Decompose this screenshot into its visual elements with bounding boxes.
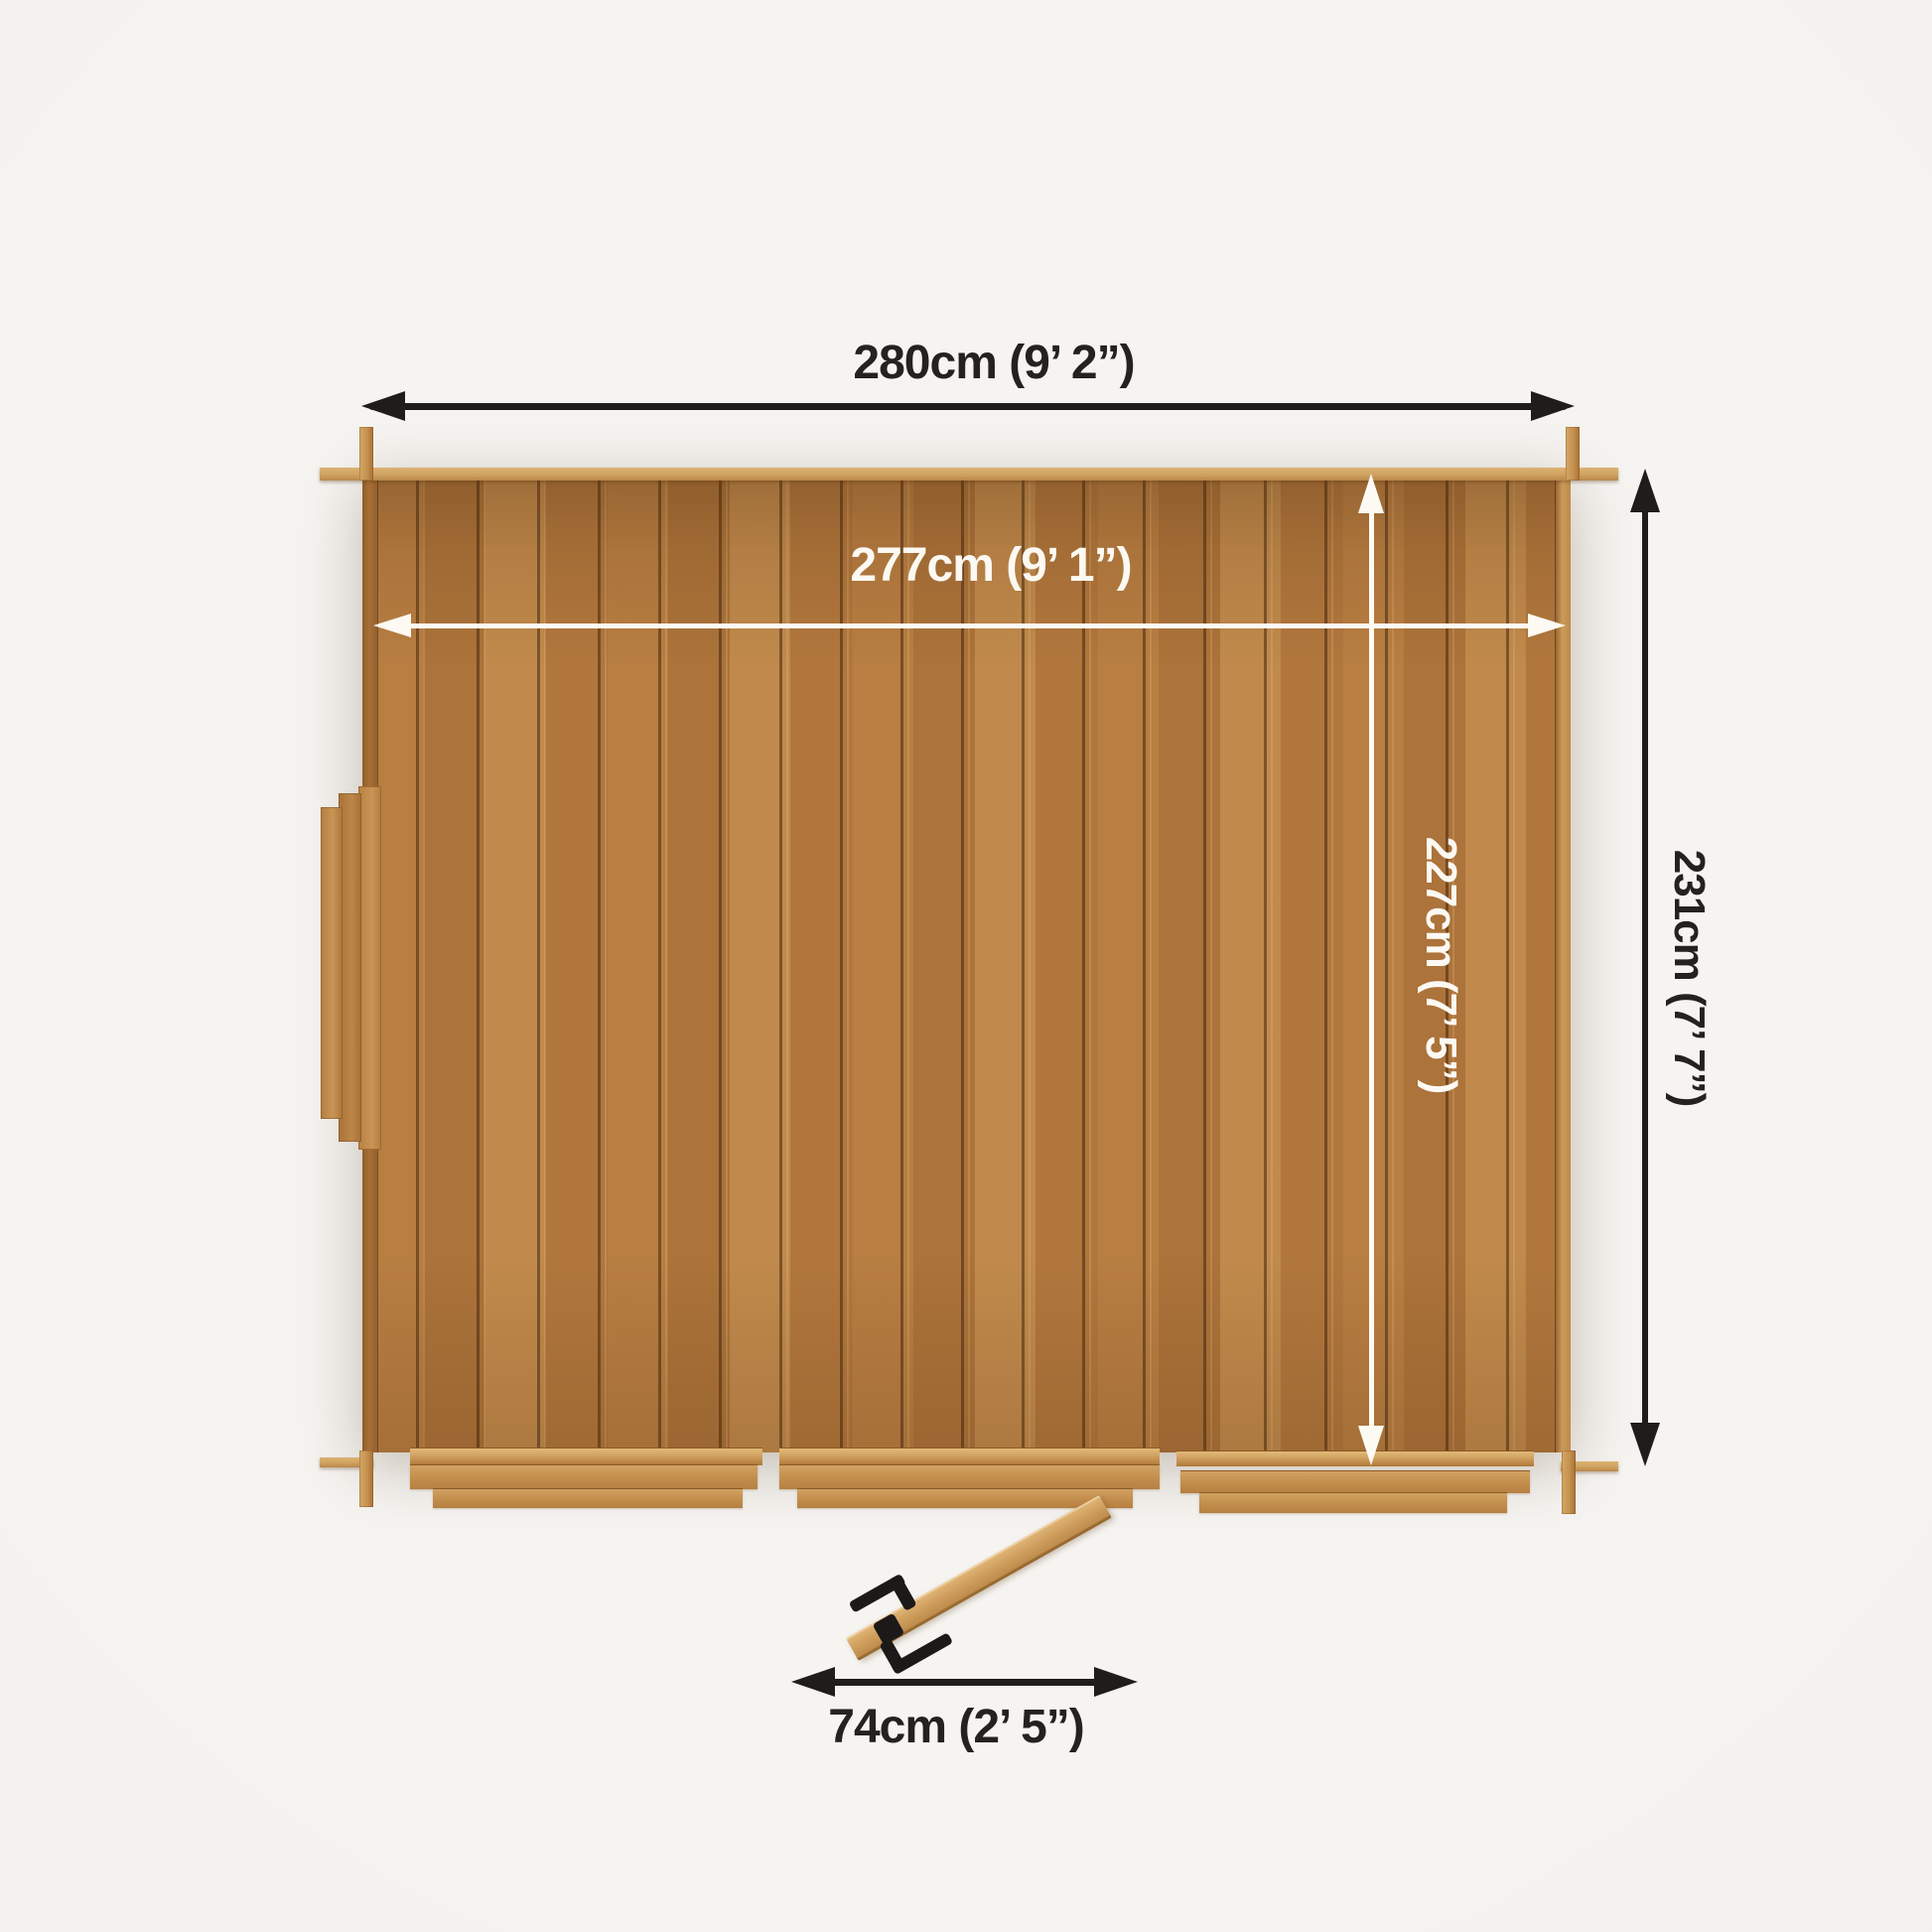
door-handle-outer-stem bbox=[889, 1574, 917, 1611]
outer-width-dimension-line bbox=[369, 403, 1567, 410]
threshold-board-middle bbox=[779, 1448, 1160, 1465]
cabin-body-panel bbox=[362, 471, 1571, 1452]
arrowhead-left-icon bbox=[361, 391, 405, 421]
arrowhead-right-icon bbox=[1531, 391, 1575, 421]
inner-width-label: 277cm (9’ 1”) bbox=[850, 542, 1131, 590]
threshold-board-left bbox=[410, 1448, 762, 1465]
arrowhead-left-icon bbox=[373, 614, 411, 637]
side-window-sill bbox=[358, 786, 381, 1150]
door-panel-open bbox=[846, 1495, 1112, 1661]
arrowhead-down-icon bbox=[1358, 1426, 1384, 1465]
step-board-left-upper bbox=[410, 1464, 758, 1489]
threshold-board-right bbox=[1176, 1450, 1534, 1466]
outer-depth-dimension-line bbox=[1642, 483, 1648, 1451]
door-width-dimension-line bbox=[804, 1679, 1125, 1686]
step-board-left-lower bbox=[433, 1488, 743, 1508]
arrowhead-right-icon bbox=[1528, 614, 1566, 637]
outer-depth-label: 231cm (7’ 7”) bbox=[1667, 850, 1711, 1107]
corner-log-top-right bbox=[1566, 427, 1580, 481]
side-window-outer-board bbox=[321, 807, 343, 1119]
arrowhead-left-icon bbox=[791, 1667, 835, 1697]
arrowhead-down-icon bbox=[1630, 1423, 1660, 1466]
inner-depth-label: 227cm (7’ 5”) bbox=[1419, 837, 1462, 1094]
product-dimension-diagram: 280cm (9’ 2”) 277cm (9’ 1”) 227cm (7’ 5”… bbox=[0, 0, 1932, 1932]
step-board-middle-upper bbox=[779, 1464, 1160, 1489]
door-width-label: 74cm (2’ 5”) bbox=[828, 1704, 1083, 1751]
arrowhead-up-icon bbox=[1358, 474, 1384, 513]
arrowhead-right-icon bbox=[1094, 1667, 1138, 1697]
arrowhead-up-icon bbox=[1630, 469, 1660, 512]
step-board-right-upper bbox=[1180, 1470, 1530, 1493]
inner-width-dimension-line bbox=[387, 623, 1552, 628]
corner-log-bottom-left bbox=[359, 1450, 373, 1507]
corner-log-top-left bbox=[359, 427, 373, 481]
inner-depth-dimension-line bbox=[1369, 486, 1374, 1451]
top-overhang-beam bbox=[320, 468, 1618, 481]
door-handle-inner-lever bbox=[891, 1632, 953, 1675]
corner-log-bottom-right bbox=[1562, 1450, 1576, 1514]
outer-width-label: 280cm (9’ 2”) bbox=[853, 340, 1134, 387]
step-board-right-lower bbox=[1199, 1492, 1507, 1513]
